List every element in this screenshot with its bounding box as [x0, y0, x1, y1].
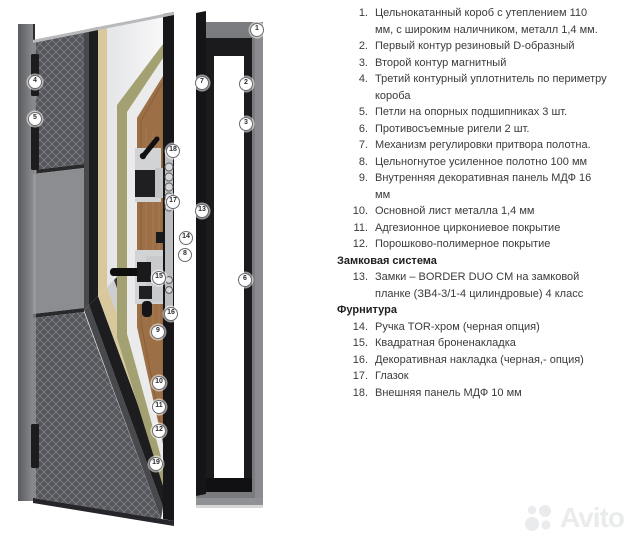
escutcheon — [137, 262, 151, 282]
lower-lock-body — [139, 286, 152, 299]
legend: 1.Цельнокатанный короб с утеплением 110 … — [337, 5, 622, 401]
legend-item-number: 7. — [337, 137, 375, 154]
watermark-text: Avito — [560, 502, 624, 534]
door-leaf — [33, 12, 174, 526]
legend-item: 3.Второй контур магнитный — [337, 55, 622, 72]
legend-item: 15.Квадратная броненакладка — [337, 335, 622, 352]
legend-item: 2.Первый контур резиновый D-образный — [337, 38, 622, 55]
legend-item-number: 9. — [337, 170, 375, 203]
legend-item-text: Основной лист металла 1,4 мм — [375, 203, 607, 220]
legend-item-number: 6. — [337, 121, 375, 138]
legend-item-text: Цельногнутое усиленное полотно 100 мм — [375, 154, 607, 171]
legend-item-number: 12. — [337, 236, 375, 253]
legend-item-text: Петли на опорных подшипниках 3 шт. — [375, 104, 607, 121]
frame-jamb — [196, 11, 206, 496]
legend-item-number: 8. — [337, 154, 375, 171]
legend-item: 18.Внешняя панель МДФ 10 мм — [337, 385, 622, 402]
legend-item-text: Внешняя панель МДФ 10 мм — [375, 385, 607, 402]
legend-item-number: 17. — [337, 368, 375, 385]
legend-item-text: Глазок — [375, 368, 607, 385]
legend-item: 4.Третий контурный уплотнитель по периме… — [337, 71, 622, 104]
threshold — [206, 478, 252, 492]
legend-item-text: Замки – BORDER DUO CM на замковой планке… — [375, 269, 607, 302]
legend-item-number: 18. — [337, 385, 375, 402]
legend-item-text: Декоративная накладка (черная,- опция) — [375, 352, 607, 369]
legend-item: 17.Глазок — [337, 368, 622, 385]
legend-item-number: 4. — [337, 71, 375, 104]
door-frame — [196, 11, 263, 508]
legend-item-number: 10. — [337, 203, 375, 220]
legend-item: 1.Цельнокатанный короб с утеплением 110 … — [337, 5, 622, 38]
legend-item-number: 15. — [337, 335, 375, 352]
legend-item-text: Первый контур резиновый D-образный — [375, 38, 607, 55]
legend-item-number: 11. — [337, 220, 375, 237]
legend-section-header: Замковая система — [337, 253, 622, 270]
legend-section-header: Фурнитура — [337, 302, 622, 319]
legend-item-text: Квадратная броненакладка — [375, 335, 607, 352]
legend-item: 7.Механизм регулировки притвора полотна. — [337, 137, 622, 154]
legend-item: 6.Противосъемные ригели 2 шт. — [337, 121, 622, 138]
legend-item-text: Порошково-полимерное покрытие — [375, 236, 607, 253]
legend-item: 8.Цельногнутое усиленное полотно 100 мм — [337, 154, 622, 171]
legend-item-text: Цельнокатанный короб с утеплением 110 мм… — [375, 5, 607, 38]
legend-item-number: 13. — [337, 269, 375, 302]
legend-item-number: 3. — [337, 55, 375, 72]
lock-side-edge — [163, 12, 174, 521]
door-cutaway-svg — [0, 0, 317, 540]
legend-item: 5.Петли на опорных подшипниках 3 шт. — [337, 104, 622, 121]
legend-item-text: Третий контурный уплотнитель по периметр… — [375, 71, 607, 104]
legend-item-text: Адгезионное циркониевое покрытие — [375, 220, 607, 237]
door-product-infographic: 12345678910111213141516171819 1.Цельнока… — [0, 0, 634, 540]
legend-item-text: Противосъемные ригели 2 шт. — [375, 121, 607, 138]
legend-item-number: 5. — [337, 104, 375, 121]
legend-item-number: 2. — [337, 38, 375, 55]
legend-item: 13.Замки – BORDER DUO CM на замковой пла… — [337, 269, 622, 302]
legend-item: 9.Внутренняя декоративная панель МДФ 16 … — [337, 170, 622, 203]
decorative-cover — [142, 301, 152, 317]
legend-item: 16.Декоративная накладка (черная,- опция… — [337, 352, 622, 369]
legend-item: 12.Порошково-полимерное покрытие — [337, 236, 622, 253]
legend-item: 11.Адгезионное циркониевое покрытие — [337, 220, 622, 237]
legend-item-text: Внутренняя декоративная панель МДФ 16 мм — [375, 170, 607, 203]
legend-item: 10.Основной лист металла 1,4 мм — [337, 203, 622, 220]
legend-item-number: 14. — [337, 319, 375, 336]
legend-item-text: Ручка TOR-хром (черная опция) — [375, 319, 607, 336]
legend-item-number: 16. — [337, 352, 375, 369]
legend-item-text: Механизм регулировки притвора полотна. — [375, 137, 607, 154]
legend-item-number: 1. — [337, 5, 375, 38]
legend-item: 14.Ручка TOR-хром (черная опция) — [337, 319, 622, 336]
avito-logo-icon — [523, 502, 555, 534]
door-cutaway-illustration: 12345678910111213141516171819 — [0, 0, 317, 540]
upper-lock-body — [135, 170, 155, 197]
avito-watermark: Avito — [523, 502, 624, 534]
legend-item-text: Второй контур магнитный — [375, 55, 607, 72]
